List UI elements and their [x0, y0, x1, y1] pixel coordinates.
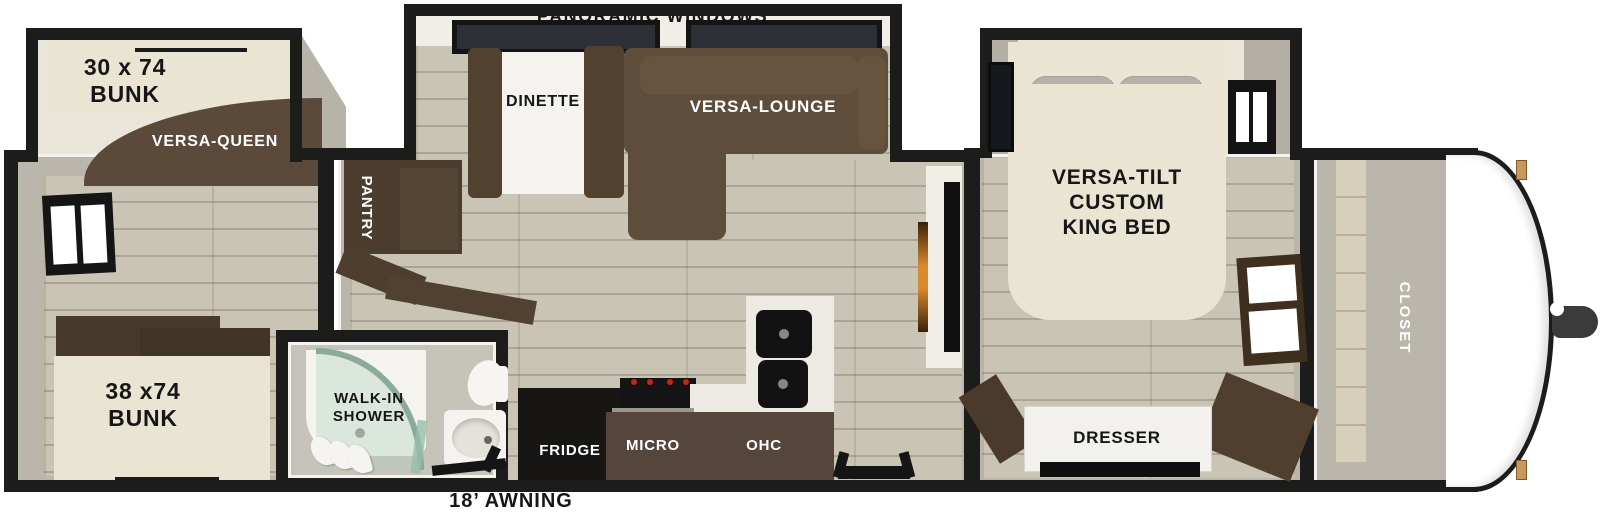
burner-2 — [647, 379, 653, 385]
cap-marker-bottom — [1516, 460, 1527, 480]
bunk-30x74-label: 30 x 74 BUNK — [55, 54, 195, 108]
bunk-30x74-trim — [135, 48, 247, 52]
closet-label: CLOSET — [1395, 263, 1413, 373]
cap-marker-top — [1516, 160, 1527, 180]
wall-bed-bottom — [976, 480, 1316, 492]
wall-living-bedroom-divider — [964, 148, 980, 492]
rear-window-pane-left — [50, 205, 77, 264]
tv — [944, 182, 960, 352]
versa-lounge-armrest — [858, 56, 886, 150]
entry-door-threshold — [838, 466, 910, 479]
sink-knob-lower — [778, 379, 788, 389]
micro-label: MICRO — [615, 437, 691, 455]
burner-1 — [631, 379, 637, 385]
bunk-38x74-label: 38 x74 BUNK — [73, 378, 213, 432]
fireplace — [918, 222, 928, 332]
wall-living-slide-left — [404, 4, 416, 160]
bedroom-wall-window-pane1 — [1247, 264, 1297, 303]
front-cap — [1446, 150, 1554, 492]
burner-4 — [683, 379, 689, 385]
wall-rear-right — [318, 148, 334, 344]
bedroom-slide-window-right-pane2 — [1253, 92, 1267, 142]
versa-queen-label: VERSA-QUEEN — [135, 133, 295, 152]
closet-shelf — [1336, 160, 1366, 462]
awning-label: 18’ AWNING — [425, 490, 597, 514]
sink-drain — [484, 436, 492, 444]
dinette-table — [502, 52, 584, 194]
floorplan: 30 x 74 BUNK VERSA-QUEEN 38 x74 BUNK PAN… — [0, 0, 1600, 516]
dresser-tv-base — [1040, 462, 1200, 477]
dinette-bench-right — [584, 46, 624, 198]
versa-lounge-label: VERSA-LOUNGE — [680, 97, 846, 117]
ohc-label: OHC — [730, 437, 798, 455]
fridge-label: FRIDGE — [528, 442, 612, 460]
wall-living-top-right — [894, 150, 974, 162]
dinette-bench-left — [468, 48, 502, 198]
bedroom-wall-window-pane2 — [1249, 308, 1300, 353]
toilet-tank — [494, 366, 508, 402]
walk-in-shower-label: WALK-IN SHOWER — [316, 390, 422, 425]
hitch-notch — [1550, 302, 1564, 316]
versa-lounge-back-cushions — [640, 56, 858, 94]
rear-window-pane-right — [80, 204, 107, 263]
burner-3 — [667, 379, 673, 385]
wall-rear-slide-right — [290, 28, 302, 162]
pantry-label: PANTRY — [357, 163, 375, 253]
wall-living-slide-right — [890, 4, 902, 162]
bedroom-slide-window-left — [988, 62, 1014, 152]
wall-rear-left — [4, 150, 18, 492]
wall-living-slide-top — [404, 4, 902, 16]
versa-lounge-chaise — [628, 142, 726, 240]
wall-bed-slide-top — [980, 28, 1302, 40]
pantry-cabinet-door — [400, 168, 458, 250]
dinette-label: DINETTE — [495, 93, 591, 112]
wall-bed-slide-right — [1290, 28, 1302, 158]
wall-rear-topright — [290, 148, 334, 160]
wall-rear-slide-left — [26, 28, 38, 162]
bedroom-slide-window-right-pane1 — [1236, 92, 1249, 142]
wall-living-top-left — [330, 148, 416, 160]
counter-back-white — [690, 384, 750, 414]
wall-rear-slide-top — [26, 28, 302, 40]
king-bed-label: VERSA-TILT CUSTOM KING BED — [1030, 166, 1204, 240]
sink-knob-upper — [779, 329, 789, 339]
dresser-label: DRESSER — [1055, 428, 1179, 448]
